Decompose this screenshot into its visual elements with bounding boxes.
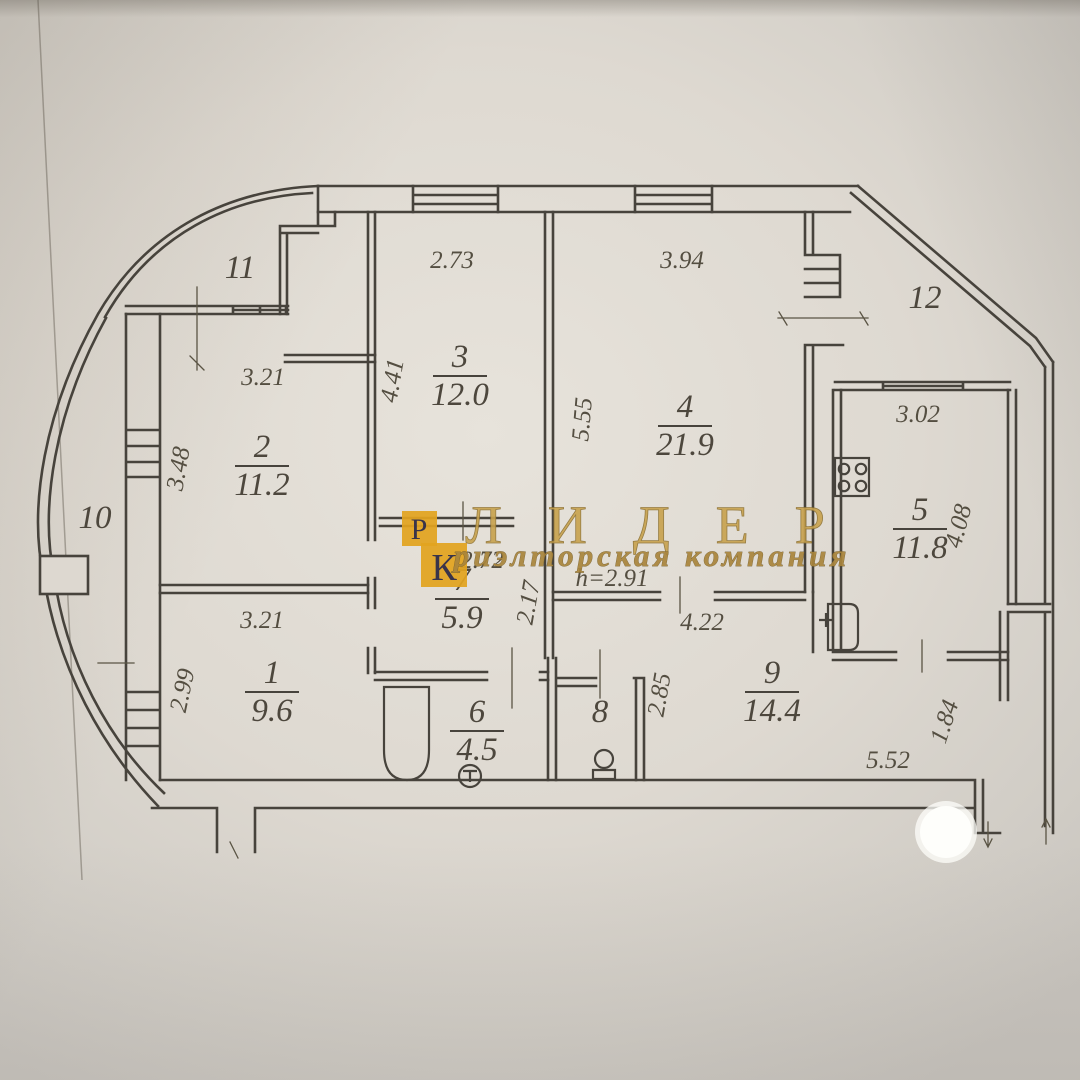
- toilet-icon: [595, 750, 613, 768]
- room-label: 312.0: [431, 339, 489, 413]
- room-area: 21.9: [656, 427, 714, 463]
- dimension-text: 5.55: [567, 396, 598, 442]
- room-label: 11: [225, 250, 256, 286]
- floor-plan-svg: 19.6211.2312.0421.9511.864.575.98914.410…: [0, 0, 1080, 1080]
- dimension-text: 2.99: [165, 666, 201, 715]
- dimension-text: 3.02: [895, 401, 940, 428]
- dimension-text: 4.41: [376, 357, 410, 405]
- dimension-text: 5.52: [866, 747, 910, 774]
- balcony-pier: [40, 556, 88, 594]
- room-area: 9.6: [251, 693, 293, 729]
- room-label: 12: [909, 280, 942, 316]
- kitchen-top-wall-window: [835, 382, 1010, 390]
- room-label: 511.8: [892, 492, 948, 566]
- room-number: 10: [79, 500, 113, 536]
- room1-top-wall: [160, 585, 368, 593]
- room-area: 11.8: [892, 530, 948, 566]
- room-area: 5.9: [441, 600, 482, 636]
- room-area: 11.2: [234, 467, 289, 503]
- top-left-pier: [280, 186, 335, 314]
- dimension-text: 4.08: [940, 501, 978, 551]
- room2-top-wall: [285, 355, 375, 362]
- left-wall-with-windows: [126, 314, 160, 780]
- scanned-floor-plan-photo: 19.6211.2312.0421.9511.864.575.98914.410…: [0, 0, 1080, 1080]
- dimension-text: 4.22: [680, 609, 724, 636]
- room-area: 14.4: [743, 693, 801, 729]
- balcony11-parapet: [126, 306, 288, 314]
- correction-blob: [915, 801, 977, 863]
- bottom-exterior-walls: [152, 780, 1000, 852]
- room4-bottom-wall: [553, 592, 805, 600]
- dimension-text: 3.94: [659, 247, 704, 274]
- room-number: 11: [225, 250, 256, 286]
- room-label: 64.5: [450, 694, 504, 768]
- dimension-text: 1.84: [925, 697, 964, 747]
- room-number: 6: [469, 694, 486, 730]
- dimension-text: 2.85: [643, 671, 677, 719]
- room-label: 19.6: [245, 655, 299, 729]
- room-area: 12.0: [431, 377, 489, 413]
- top-windows: [413, 186, 712, 212]
- top-exterior-wall: [318, 186, 858, 212]
- room-area: 4.5: [456, 732, 497, 768]
- room-number: 2: [254, 429, 271, 465]
- hall7-bottom-wall: [375, 672, 548, 680]
- room-number: 12: [909, 280, 942, 316]
- room-label: 914.4: [743, 655, 801, 729]
- dimension-text: 3.21: [239, 607, 284, 634]
- logo-letter-p: Р: [411, 513, 428, 546]
- wall-rooms-2-3: [368, 212, 375, 673]
- bathtub-icon: [384, 687, 429, 780]
- dimension-text: 2.17: [512, 577, 546, 626]
- room-number: 3: [451, 339, 469, 375]
- room-number: 5: [912, 492, 929, 528]
- room-number: 8: [592, 694, 609, 730]
- room-number: 1: [264, 655, 281, 691]
- room-label: 421.9: [656, 389, 714, 463]
- dimension-text: 2.73: [430, 247, 474, 274]
- room-label: 211.2: [234, 429, 289, 503]
- room-number: 9: [764, 655, 781, 691]
- dimension-text: 3.48: [161, 444, 195, 493]
- dimension-text: 3.21: [240, 364, 285, 391]
- room-label: 8: [592, 694, 609, 730]
- watermark-tagline: риэлторская компания: [451, 538, 851, 573]
- room-label: 10: [79, 500, 113, 536]
- room-number: 4: [677, 389, 694, 425]
